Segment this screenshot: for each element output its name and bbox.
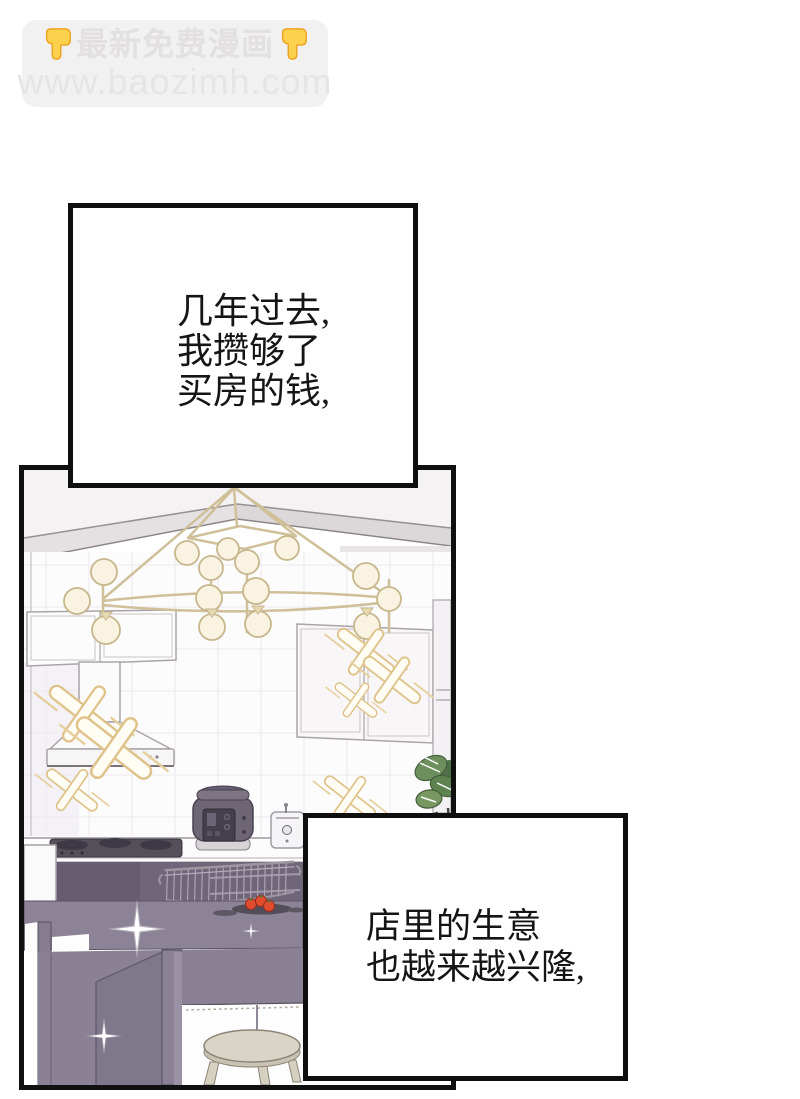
narration-line: 买房的钱, [177,371,330,411]
gas-cooktop [50,838,182,857]
watermark-site-url: www.baozimh.com [17,62,332,102]
finger-pointing-down-icon [276,27,310,61]
narration-text-1: 几年过去, 我攒够了 买房的钱, [177,291,330,411]
watermark-promo-text: 最新免费漫画 [76,26,274,62]
manga-page: 最新免费漫画 www.baozimh.com [0,0,800,1099]
narration-line: 我攒够了 [177,331,330,371]
narration-box-2: 店里的生意 也越来越兴隆, [303,813,628,1081]
watermark: 最新免费漫画 www.baozimh.com [22,20,328,107]
narration-line: 店里的生意 [366,906,585,947]
watermark-promo-line: 最新免费漫画 [40,26,310,62]
finger-pointing-down-icon [40,27,74,61]
narration-line: 也越来越兴隆, [366,947,585,988]
narration-line: 几年过去, [177,291,330,331]
narration-box-1: 几年过去, 我攒够了 买房的钱, [68,203,418,488]
narration-text-2: 店里的生意 也越来越兴隆, [366,906,585,988]
rice-cooker [193,786,253,850]
